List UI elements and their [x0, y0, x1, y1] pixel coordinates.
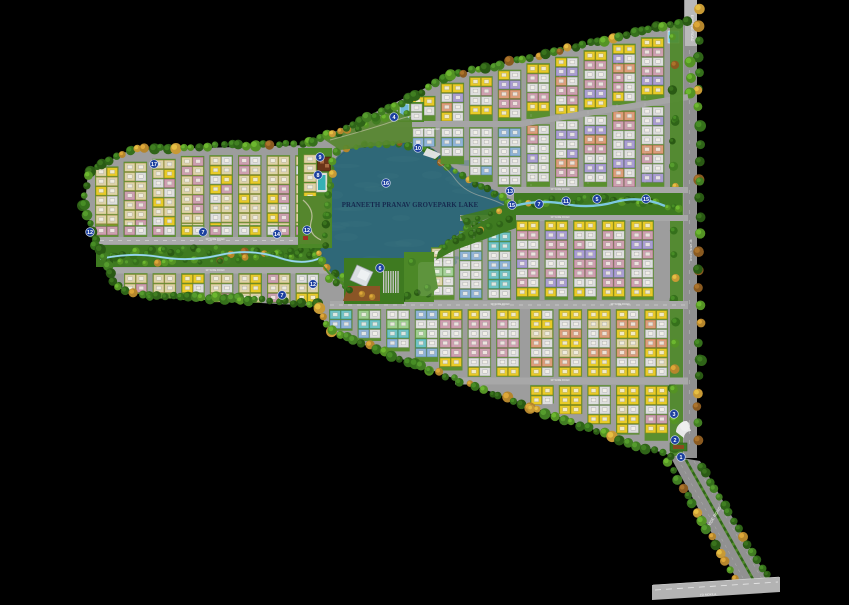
svg-text:30' WIDE ROAD: 30' WIDE ROAD: [490, 302, 509, 306]
svg-text:4: 4: [393, 115, 396, 121]
svg-text:30' WIDE ROAD: 30' WIDE ROAD: [550, 187, 569, 191]
svg-text:8: 8: [317, 173, 320, 179]
svg-text:30' WIDE ROAD: 30' WIDE ROAD: [550, 378, 569, 382]
svg-text:7: 7: [538, 202, 541, 208]
svg-text:2: 2: [674, 438, 677, 444]
svg-text:30' WIDE ROAD: 30' WIDE ROAD: [205, 237, 224, 241]
svg-text:6: 6: [379, 266, 382, 272]
svg-text:11: 11: [563, 199, 569, 205]
svg-text:10: 10: [415, 146, 421, 152]
svg-text:TO MOKILA: TO MOKILA: [700, 592, 716, 597]
svg-text:14: 14: [274, 232, 280, 238]
svg-text:15: 15: [643, 197, 649, 203]
svg-text:7: 7: [202, 230, 205, 236]
svg-text:3: 3: [673, 412, 676, 418]
svg-text:40' WIDE ROAD: 40' WIDE ROAD: [689, 239, 693, 262]
svg-text:13: 13: [507, 189, 513, 195]
svg-text:1: 1: [680, 455, 683, 461]
svg-text:17: 17: [151, 162, 157, 168]
svg-text:30' WIDE ROAD: 30' WIDE ROAD: [205, 268, 224, 272]
svg-text:30' WIDE ROAD: 30' WIDE ROAD: [420, 127, 439, 131]
svg-text:30' WIDE ROAD: 30' WIDE ROAD: [550, 215, 569, 219]
svg-text:PRANEETH PRANAV GROVEPARK LAKE: PRANEETH PRANAV GROVEPARK LAKE: [342, 202, 479, 209]
svg-text:12: 12: [87, 230, 93, 236]
svg-text:15: 15: [509, 203, 515, 209]
svg-text:7: 7: [281, 293, 284, 299]
svg-text:16: 16: [383, 181, 389, 187]
svg-text:12: 12: [310, 282, 316, 288]
svg-text:5: 5: [596, 197, 599, 203]
svg-text:30' WIDE ROAD: 30' WIDE ROAD: [610, 302, 629, 306]
svg-text:9: 9: [319, 155, 322, 161]
svg-text:12: 12: [304, 228, 310, 234]
